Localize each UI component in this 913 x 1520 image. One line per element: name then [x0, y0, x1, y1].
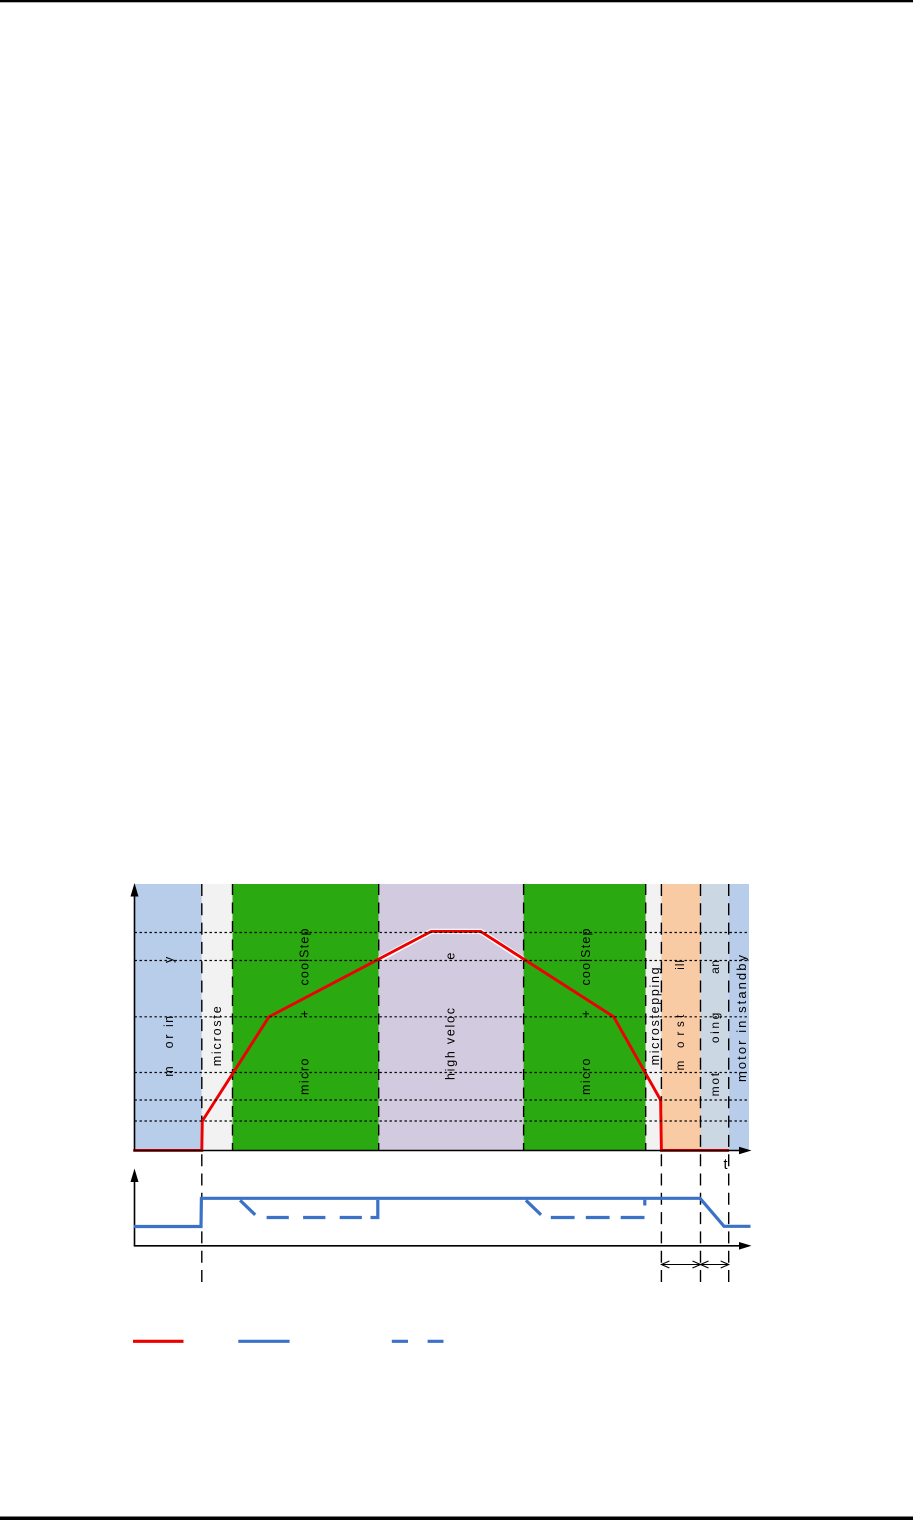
svg-text:micro: micro	[297, 1058, 311, 1095]
svg-text:high veloc: high veloc	[444, 1008, 458, 1080]
svg-text:m: m	[675, 1061, 687, 1071]
svg-text:+: +	[297, 1010, 311, 1017]
svg-text:an: an	[708, 960, 722, 974]
svg-text:t: t	[724, 1157, 728, 1173]
svg-text:e: e	[444, 953, 458, 960]
svg-text:ill: ill	[675, 960, 687, 970]
svg-text:in: in	[162, 1016, 176, 1027]
svg-text:microste: microste	[210, 1006, 224, 1066]
svg-text:m: m	[162, 1066, 176, 1076]
svg-text:micro: micro	[579, 1058, 593, 1095]
svg-text:coolStep: coolStep	[579, 928, 593, 985]
svg-text:or: or	[162, 1035, 176, 1049]
svg-text:coolStep: coolStep	[297, 928, 311, 985]
svg-text:mot: mot	[708, 1072, 722, 1096]
svg-text:motor in standby: motor in standby	[734, 955, 749, 1083]
svg-text:y: y	[162, 956, 176, 963]
